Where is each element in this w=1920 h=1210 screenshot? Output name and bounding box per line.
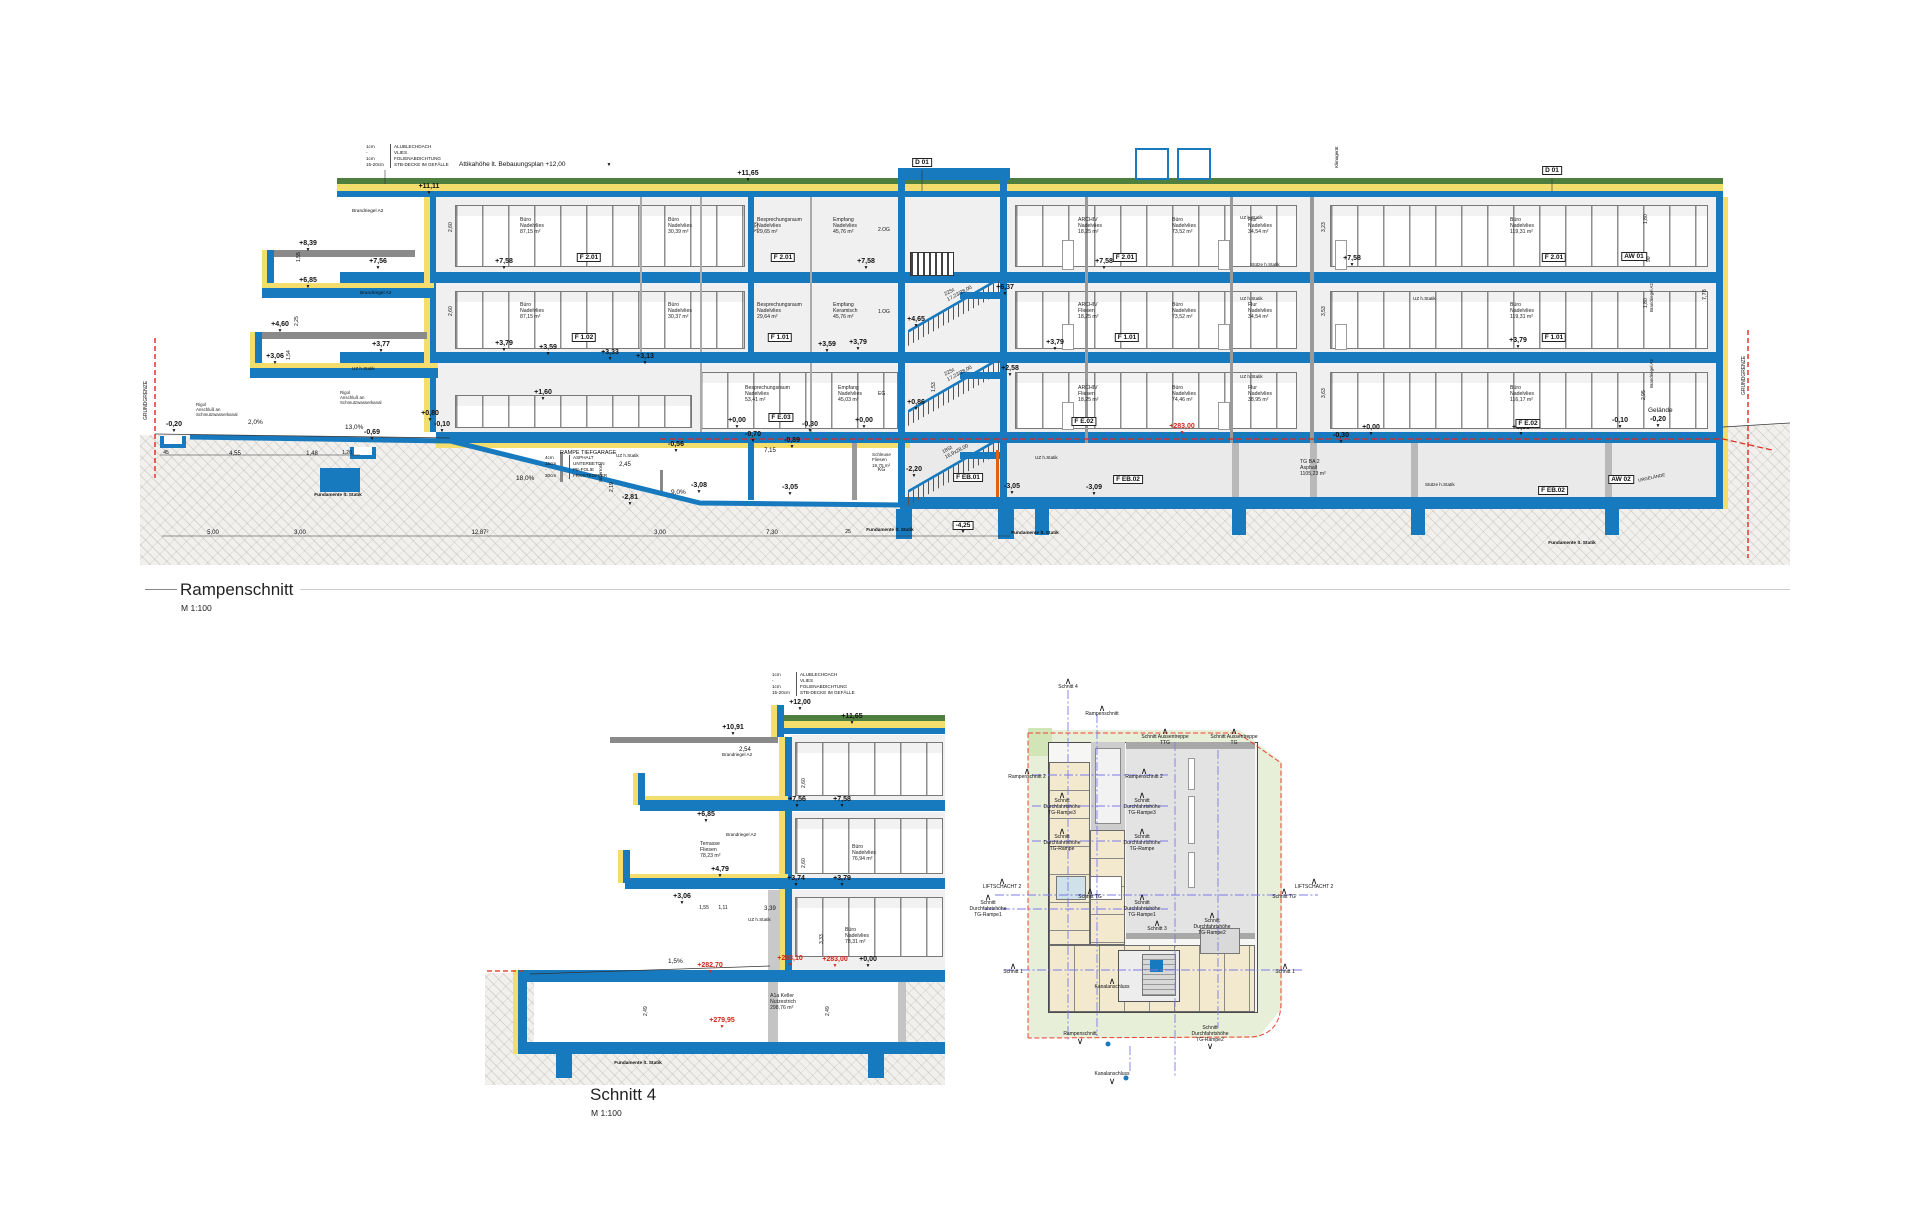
keller-wall xyxy=(518,970,527,1054)
level-label: +3,77▼ xyxy=(372,341,390,353)
roof-buildup-legend: 1cmALUBLECHDACH-VLIES1cmFOLIENABDICHTUNG… xyxy=(366,144,449,168)
dim-label: 3,23 xyxy=(1322,222,1328,232)
dim-label: Fundamente lt. Statik xyxy=(614,1060,661,1065)
dim-label: 2,60 xyxy=(449,306,455,316)
dim-label: Brandriegel A2 xyxy=(1649,283,1654,312)
level-label: +3,33▼ xyxy=(601,349,619,361)
code-box: D 01 xyxy=(912,158,932,167)
note-label: RAMPE TIEFGARAGE xyxy=(560,450,616,456)
level-label: -3,08▼ xyxy=(691,482,707,494)
level-label: -0,89▼ xyxy=(784,437,800,449)
level-label: +3,79▼ xyxy=(1046,339,1064,351)
rooftop-unit xyxy=(1177,148,1211,180)
section-marker: Schnitt Durchfahrtshöhe TG-Rampe2∨ xyxy=(1192,1026,1229,1050)
garage-column xyxy=(1411,443,1418,497)
level-label: -3,05▼ xyxy=(782,484,798,496)
level-label: +282,70▼ xyxy=(697,962,723,974)
level-label: +6,85▼ xyxy=(697,811,715,823)
level-label: +11,65▼ xyxy=(737,170,758,182)
note-label: EG xyxy=(878,392,885,398)
level-label: +7,58▼ xyxy=(1095,258,1113,270)
keller-right-wall xyxy=(898,982,906,1042)
note-label: UZ h.Statik xyxy=(1035,455,1058,460)
code-box: AW 01 xyxy=(1621,252,1647,261)
dim-label: 1,55 xyxy=(699,906,709,912)
dim-label: 7,78 xyxy=(1702,289,1708,300)
interior-wall xyxy=(810,197,812,352)
note-label: UZ h.Statik xyxy=(616,453,639,458)
section-marker: ∧Kanalanschluss xyxy=(1094,978,1129,991)
level-label: ▼ xyxy=(607,163,612,167)
code-box: AW 02 xyxy=(1608,475,1634,484)
plan-corridor-inner xyxy=(1095,748,1121,824)
room-label: Büro Nadelvlies 119,31 m² xyxy=(1510,218,1534,236)
roof-slab-s4 xyxy=(783,728,945,734)
code-box: F E.02 xyxy=(1071,417,1096,426)
code-box: D 01 xyxy=(1542,166,1562,175)
code-box: F 2.01 xyxy=(1542,253,1566,262)
code-box: F 1.01 xyxy=(1542,333,1566,342)
room-label: Empfang Keramisch 45,76 m² xyxy=(833,303,858,321)
section-marker: ∧LIFTSCHACHT 2 xyxy=(1295,878,1334,891)
note-label: Stütze h.Statik xyxy=(1250,262,1280,267)
note-label: UZ h.Statik xyxy=(1240,374,1263,379)
dim-label: 2,95 xyxy=(1642,390,1648,400)
level-label: +2,58▼ xyxy=(1001,365,1019,377)
section-marker: ∧Schnitt TG xyxy=(1078,888,1102,901)
level-label: +0,86▼ xyxy=(907,399,925,411)
dim-label: 1,55 xyxy=(297,252,303,262)
level-label: -3,05▼ xyxy=(1004,483,1020,495)
section-marker: ∧Schnitt Durchfahrtshöhe TG-Rampe xyxy=(1124,828,1161,852)
section-marker: ∧Rampenschnitt 2 xyxy=(1125,768,1163,781)
legend-row: 15-20cmSTB-DECKE IM GEFÄLLE xyxy=(772,690,855,696)
note-label: Brandriegel A2 xyxy=(352,209,383,215)
level-label: +3,59▼ xyxy=(539,344,557,356)
code-box: F EB.02 xyxy=(1538,486,1568,495)
note-label: Brandriegel A2 xyxy=(360,291,391,297)
main-drawing-title: Rampenschnitt xyxy=(180,580,293,600)
section-marker: ∧Schnitt 1 xyxy=(1003,963,1022,976)
section-marker: ∧Schnitt Durchfahrtshöhe TG-Rampe2 xyxy=(1194,912,1231,936)
dim-label: 25 xyxy=(845,530,851,536)
note-label: 2.OG xyxy=(878,228,890,234)
fire-line xyxy=(996,450,999,497)
level-label: +12,00▼ xyxy=(789,699,811,711)
room-label: Büro Nadelvlies 76,94 m² xyxy=(852,845,876,863)
level-label: -0,20▼ xyxy=(166,421,182,433)
level-label: -0,20▼ xyxy=(1650,416,1666,428)
plan-lift xyxy=(1150,960,1163,972)
level-label: +3,79▼ xyxy=(495,340,513,352)
interior-wall xyxy=(1230,197,1233,443)
room-label: Empfang Nadelvlies 45,03 m² xyxy=(838,386,862,404)
right-facade-wall xyxy=(1716,197,1723,443)
level-label: +8,39▼ xyxy=(299,240,317,252)
dim-label: 2,49 xyxy=(644,1006,650,1016)
door-opening xyxy=(1218,402,1230,430)
room-label: Flur Nadelvlies 34,54 m² xyxy=(1248,218,1272,236)
room-label: Büro Nadelvlies 119,31 m² xyxy=(1510,303,1534,321)
clerestory-band xyxy=(455,395,692,428)
level-label: +7,58▼ xyxy=(833,796,851,808)
note-label: Brandriegel A2 xyxy=(722,752,752,757)
section-marker: ∧Schnitt Durchfahrtshöhe TG-Rampe1 xyxy=(970,894,1007,918)
foundation-pier-s4 xyxy=(556,1054,572,1078)
dim-label: Fundamente lt. Statik xyxy=(1548,540,1595,545)
dim-label: 3,00 xyxy=(294,530,306,537)
dim-label: 5,00 xyxy=(207,530,219,537)
dim-label: 2,60 xyxy=(802,858,808,868)
room-label: Büro Nadelvlies 73,52 m² xyxy=(1172,303,1196,321)
room-label: Büro Nadelvlies 116,17 m² xyxy=(1510,386,1534,404)
section-marker: ∧Rampenschnitt 2 xyxy=(1008,768,1046,781)
room-label: Besprechungsraum Nadelvlies 29,64 m² xyxy=(757,303,802,321)
level-label: -2,20▼ xyxy=(906,466,922,478)
section-marker: ∧Schnitt Aussentreppe TG xyxy=(1210,728,1257,747)
interior-wall xyxy=(700,363,702,432)
level-label: -3,09▼ xyxy=(1086,484,1102,496)
note-label: UZ h.Statik xyxy=(1240,215,1263,220)
code-box: F 1.01 xyxy=(768,333,792,342)
level-label: +3,06▼ xyxy=(266,353,284,365)
dim-label: 12,87² xyxy=(471,530,488,537)
level-label: +7,56▼ xyxy=(369,258,387,270)
door-opening xyxy=(1335,324,1347,350)
dim-label: 3,53 xyxy=(1322,306,1328,316)
title-rule xyxy=(300,589,1790,590)
level-label: +3,79▼ xyxy=(1509,337,1527,349)
roof-insulation-s4 xyxy=(783,721,945,728)
level-label: -0,30▼ xyxy=(802,421,818,433)
level-label: +279,95▼ xyxy=(709,1017,735,1029)
drainage-pit xyxy=(160,436,186,448)
section-marker: Kanalanschluss∨ xyxy=(1094,1072,1129,1085)
level-label: +0,00▼ xyxy=(859,956,877,968)
level-label: +0,00▼ xyxy=(1362,424,1380,436)
note-label: KG xyxy=(878,468,885,474)
note-label: 1,5% xyxy=(668,958,683,965)
level-label: +11,11▼ xyxy=(419,183,440,195)
dim-label: 2,60 xyxy=(802,778,808,788)
level-label: +4,65▼ xyxy=(907,316,925,328)
level-label: +6,85▼ xyxy=(299,277,317,289)
code-box: F 2.01 xyxy=(771,253,795,262)
room-label: Besprechungsraum Nadelvlies 29,65 m² xyxy=(757,218,802,236)
room-label: Büro Nadelvlies 30,39 m² xyxy=(668,218,692,236)
dim-label: 2,60 xyxy=(449,222,455,232)
level-label: +3,74▼ xyxy=(787,875,805,887)
right-facade-insulation xyxy=(1723,197,1728,443)
note-label: 18,0% xyxy=(516,475,534,482)
dim-label: 3,33 xyxy=(755,222,761,232)
title-rule xyxy=(145,589,177,590)
terrace-floor xyxy=(262,288,434,298)
note-label: 2,0% xyxy=(248,419,263,426)
section-marker: ∧Schnitt 1 xyxy=(1275,963,1294,976)
slab-kg-s4 xyxy=(520,1042,945,1054)
slab-2og xyxy=(340,272,1723,283)
room-label: Büro Nadelvlies 87,15 m² xyxy=(520,303,544,321)
interior-wall xyxy=(700,197,702,352)
plan-skylight-slot xyxy=(1188,852,1195,888)
level-label: +4,79▼ xyxy=(711,866,729,878)
s4-drawing-title: Schnitt 4 xyxy=(590,1085,656,1105)
roof-buildup-legend-s4: 1cmALUBLECHDACH-VLIES1cmFOLIENABDICHTUNG… xyxy=(772,672,855,696)
section-marker: ∧Schnitt 4 xyxy=(1058,678,1077,691)
level-label: +3,06▼ xyxy=(673,893,691,905)
level-label: +0,00▼ xyxy=(728,417,746,429)
level-label: -0,10▼ xyxy=(434,421,450,433)
keller-mid-wall xyxy=(768,982,778,1042)
dim-label: 2,25 xyxy=(295,316,301,326)
level-label: +3,79▼ xyxy=(849,339,867,351)
level-label: +1,60▼ xyxy=(534,389,552,401)
dim-label: Fundamente lt. Statik xyxy=(314,492,361,497)
section-marker: Rampenschnitt∨ xyxy=(1063,1032,1096,1045)
section-marker: ∧LIFTSCHACHT 2 xyxy=(983,878,1022,891)
level-label: -0,30▼ xyxy=(1333,432,1349,444)
room-label: Besprechungsraum Nadelvlies 53,41 m² xyxy=(745,386,790,404)
dim-label: Fundamente lt. Statik xyxy=(866,527,913,532)
level-label: +4,60▼ xyxy=(271,321,289,333)
section-marker: ∧Schnitt Durchfahrtshöhe TG-Rampe1 xyxy=(1124,894,1161,918)
code-box: F E.02 xyxy=(1515,419,1540,428)
door-opening xyxy=(1218,240,1230,270)
basement-insulation-right xyxy=(1723,443,1728,509)
section-marker: ∧Schnitt TG xyxy=(1272,888,1296,901)
door-opening xyxy=(1218,324,1230,350)
core-wall-kg xyxy=(748,443,754,500)
dim-label: 2,49 xyxy=(826,1006,832,1016)
dim-label: 3,63 xyxy=(1322,388,1328,398)
note-label: 9,0% xyxy=(671,489,686,496)
level-label: -0,69▼ xyxy=(364,429,380,441)
level-label: +3,79▼ xyxy=(833,875,851,887)
room-label: Rigol Anschluß an Schmutzwasserkanal xyxy=(340,390,381,405)
note-label: 1.OG xyxy=(878,310,890,316)
terrace-parapet-s4 xyxy=(638,773,645,805)
dim-label: 3,00 xyxy=(654,530,666,537)
plan-skylight-slot xyxy=(1188,758,1195,790)
level-label: +7,56▼ xyxy=(788,796,806,808)
slab-kg xyxy=(900,497,1723,509)
note-label: UZ h.Statik xyxy=(1413,296,1436,301)
s4-drawing-scale: M 1:100 xyxy=(591,1108,622,1118)
note-label: UZ h.Statik xyxy=(352,366,375,371)
main-drawing-scale: M 1:100 xyxy=(181,603,212,613)
dim-label: 1,11 xyxy=(718,906,727,912)
note-label: 13,0% xyxy=(345,424,363,431)
level-label: +7,58▼ xyxy=(495,258,513,270)
level-label: -0,10▼ xyxy=(1612,417,1628,429)
room-label: Büro Nadelvlies 73,52 m² xyxy=(1172,218,1196,236)
window-band-s4 xyxy=(795,742,943,796)
dim-label: 1,53 xyxy=(932,382,938,392)
note-label: Gelände xyxy=(1648,407,1673,414)
stair-core-parapet xyxy=(898,168,1010,180)
dim-label: 90 xyxy=(1647,256,1653,262)
level-label: +3,59▼ xyxy=(818,341,836,353)
vent-grille xyxy=(910,252,954,276)
room-label: ARCHIV Fliesen 18,25 m² xyxy=(1078,303,1098,321)
section-marker: ∧Schnitt Durchfahrtshöhe TG-Rampe xyxy=(1044,828,1081,852)
dim-label: 1,54 xyxy=(287,350,293,360)
code-box: F 1.01 xyxy=(1115,333,1139,342)
level-label: +0,00▼ xyxy=(855,417,873,429)
foundation-block xyxy=(320,468,360,492)
roof-insulation xyxy=(337,184,1723,191)
code-box: F EB.01 xyxy=(953,473,983,482)
level-label: +283,10▼ xyxy=(777,955,803,967)
parapet-s4 xyxy=(777,705,784,737)
room-label: ARCHIV Nadelvlies 18,25 m² xyxy=(1078,218,1102,236)
room-label: Schleuse Fliesen 19,75 m² xyxy=(872,452,891,468)
section-marker: ∧Rampenschnitt xyxy=(1085,705,1118,718)
interior-wall xyxy=(640,197,642,352)
stair-landing xyxy=(960,452,1006,459)
code-box: F 2.01 xyxy=(577,253,601,262)
dim-label: 2,19 xyxy=(610,482,616,492)
basement-wall-right xyxy=(1716,443,1723,509)
dim-label: 2,45 xyxy=(619,462,631,469)
window-band-s4 xyxy=(795,897,943,957)
note-label: Attikahöhe lt. Bebauungsplan +12,00 xyxy=(459,161,565,168)
note-label: UZ h.Statik xyxy=(748,917,771,922)
core-wall xyxy=(748,197,754,357)
room-label: ARCHIV Fliesen 18,25 m² xyxy=(1078,386,1098,404)
keller-room xyxy=(534,982,906,1042)
level-label: -2,81▼ xyxy=(622,494,638,506)
room-label: A1a Keller Nutzestrich 298,76 m² xyxy=(770,994,796,1012)
garage-column xyxy=(1605,443,1612,497)
code-box: F E.03 xyxy=(768,413,793,422)
legend-row: 15-20cmSTB-DECKE IM GEFÄLLE xyxy=(366,162,449,168)
dim-label: 1,80 xyxy=(1644,214,1650,224)
plan-room-column xyxy=(1049,762,1090,945)
drawing-sheet: 1cmALUBLECHDACH-VLIES1cmFOLIENABDICHTUNG… xyxy=(0,0,1920,1210)
schleuse-wall xyxy=(852,443,857,500)
dim-label: GRUNDGRENZE xyxy=(144,381,150,420)
dim-label: 1,80 xyxy=(1644,298,1650,308)
level-box: -4,25▼ xyxy=(953,521,974,534)
column-line xyxy=(1310,197,1314,443)
level-label: +7,58▼ xyxy=(857,258,875,270)
rooftop-unit xyxy=(1135,148,1169,180)
room-label: Rigol Anschluß an Schmutzwasserkanal xyxy=(196,402,237,417)
dim-label: Fundamente lt. Statik xyxy=(1011,530,1058,535)
room-label: Empfang Nadelvlies 45,76 m² xyxy=(833,218,857,236)
level-label: -0,70▼ xyxy=(745,431,761,443)
kanal-symbol xyxy=(1106,1042,1111,1047)
plan-skylight-slot xyxy=(1188,796,1195,844)
stair-core-wall xyxy=(898,180,905,505)
dim-label: Klimagerät xyxy=(1334,146,1339,168)
dim-label: Brandriegel A2 xyxy=(1649,359,1654,388)
level-label: +283,00▼ xyxy=(822,956,848,968)
section-marker: ∧Schnitt Aussentreppe TTG xyxy=(1141,728,1188,747)
room-label: Büro Nadelvlies 87,15 m² xyxy=(520,218,544,236)
section-marker: ∧Schnitt 3 xyxy=(1147,920,1166,933)
canopy-s4 xyxy=(610,737,778,743)
slab-eg-s4 xyxy=(520,970,945,982)
facade-wall-s4 xyxy=(785,737,792,970)
level-label: +11,65▼ xyxy=(841,713,862,725)
dim-label: 3,33 xyxy=(820,934,826,944)
level-label: +7,58▼ xyxy=(1343,255,1361,267)
terrace-parapet-s4 xyxy=(623,850,630,883)
note-label: Stütze h.Statik xyxy=(1425,482,1455,487)
foundation-pier-s4 xyxy=(868,1054,884,1078)
room-label: Terrasse Fliesen 78,23 m² xyxy=(700,842,720,860)
terrace-floor xyxy=(250,368,438,378)
room-label: Büro Nadelvlies 30,37 m² xyxy=(668,303,692,321)
room-label: Flur Nadelvlies 38,95 m² xyxy=(1248,386,1272,404)
drainage-pit xyxy=(350,447,376,459)
level-label: +283,00▼ xyxy=(1169,423,1195,435)
door-opening xyxy=(1062,240,1074,270)
dim-label: 1,20 xyxy=(342,451,352,457)
code-box: F 1.02 xyxy=(572,333,596,342)
dim-label: GRUNDGRENZE xyxy=(1742,356,1748,395)
dim-label: 3,39 xyxy=(764,906,776,913)
foundation-pier xyxy=(1411,509,1425,535)
section-marker: ∧Schnitt Durchfahrtshöhe TG-Rampe3 xyxy=(1124,792,1161,816)
garage-column xyxy=(1232,443,1239,497)
room-label: Flur Nadelvlies 34,54 m² xyxy=(1248,303,1272,321)
room-label: Büro Nadelvlies 74,46 m² xyxy=(1172,386,1196,404)
foundation-pier xyxy=(1232,509,1246,535)
room-label: TG BA 2 Asphalt 1105,23 m² xyxy=(1300,460,1326,478)
level-label: -0,56▼ xyxy=(668,441,684,453)
code-box: F EB.02 xyxy=(1113,475,1143,484)
level-label: +3,13▼ xyxy=(636,353,654,365)
code-box: F 2.01 xyxy=(1113,253,1137,262)
dim-label: 7,15 xyxy=(764,448,776,455)
dim-label: 4,55 xyxy=(229,451,241,458)
foundation-pier xyxy=(896,509,912,539)
left-facade-wall xyxy=(430,197,436,432)
dim-label: Gitterrost xyxy=(598,464,603,482)
level-label: +6,37▼ xyxy=(996,284,1014,296)
foundation-pier xyxy=(1605,509,1619,535)
dim-label: 1,48 xyxy=(306,451,318,458)
terrace-canopy xyxy=(262,250,415,257)
level-label: +10,91▼ xyxy=(722,724,744,736)
section-marker: ∧Schnitt Durchfahrtshöhe TG-Rampe3 xyxy=(1044,792,1081,816)
dim-label: 7,30 xyxy=(766,530,778,537)
note-label: Brandriegel A2 xyxy=(726,832,756,837)
note-label: UZ h.Statik xyxy=(1240,296,1263,301)
slab-eg xyxy=(436,432,1723,443)
slab-1og-s4 xyxy=(625,878,945,889)
room-label: Büro Nadelvlies 78,31 m² xyxy=(845,928,869,946)
ramp-post xyxy=(660,470,663,496)
dim-label: 45 xyxy=(163,451,169,457)
